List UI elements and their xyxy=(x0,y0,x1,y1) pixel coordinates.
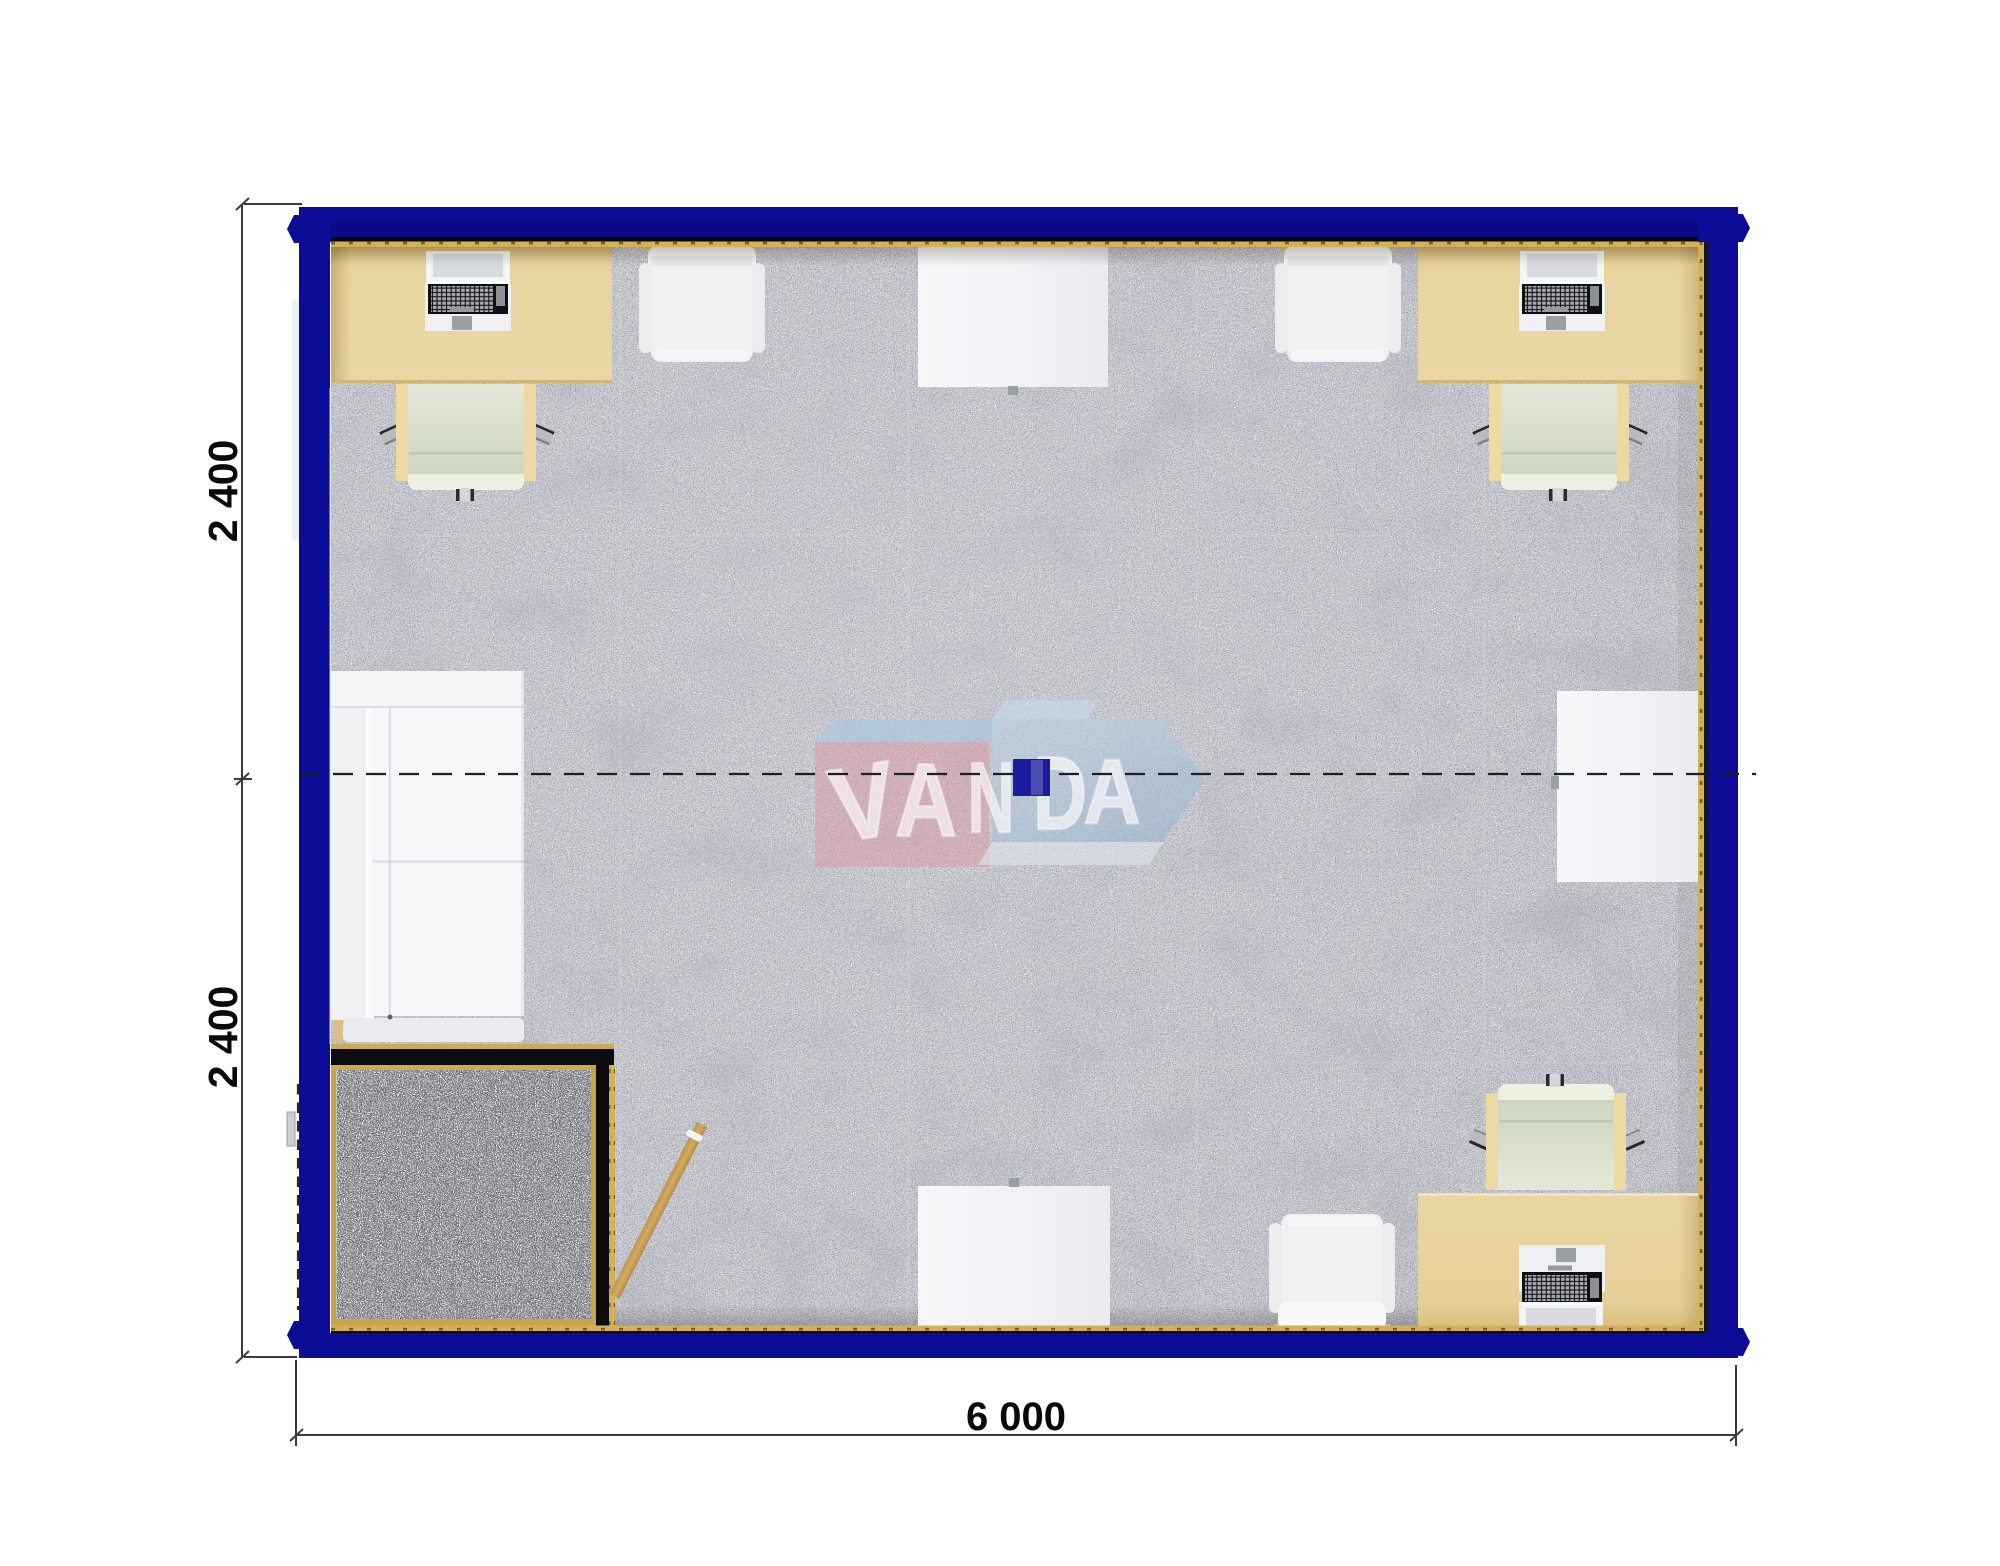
svg-text:6 000: 6 000 xyxy=(966,1395,1066,1439)
svg-text:N: N xyxy=(968,742,1015,854)
svg-text:2 400: 2 400 xyxy=(200,440,246,543)
svg-text:A: A xyxy=(895,743,957,859)
svg-text:A: A xyxy=(1084,741,1141,843)
svg-text:2 400: 2 400 xyxy=(200,986,246,1089)
